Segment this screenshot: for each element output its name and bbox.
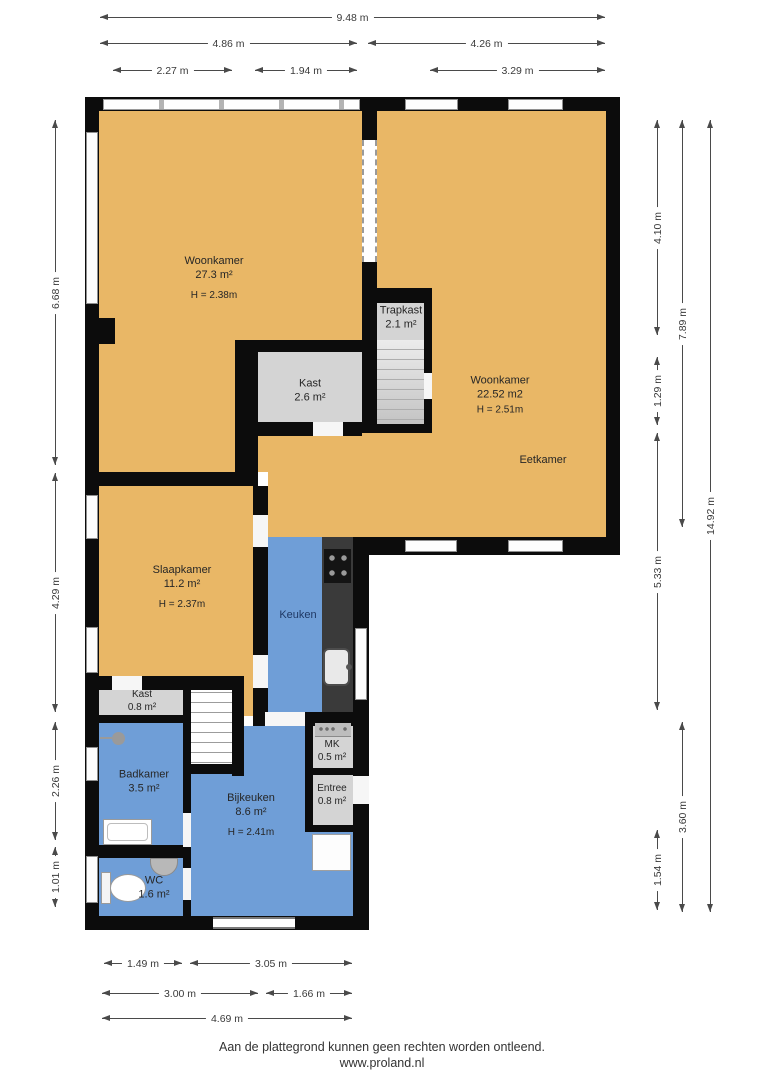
dimension-label: 2.27 m <box>151 65 193 77</box>
dimension-label: 4.10 m <box>652 206 664 248</box>
dim-bottom-total: 4.69 m <box>102 1018 352 1019</box>
dim-top-left-half: 4.86 m <box>100 43 357 44</box>
dim-bottom-seg2: 3.05 m <box>190 963 352 964</box>
dim-top-seg3: 3.29 m <box>430 70 605 71</box>
room-area: 2.1 m² <box>380 318 422 332</box>
dimension-label: 4.86 m <box>207 38 249 50</box>
room-name: Bijkeuken <box>227 791 275 805</box>
dimension-label: 1.94 m <box>285 65 327 77</box>
dim-left-slaapkamer: 4.29 m <box>55 473 56 712</box>
room-area: 11.2 m² <box>153 578 212 592</box>
room-area: 8.6 m² <box>227 806 275 820</box>
staircase <box>187 683 232 764</box>
room-height: H = 2.37m <box>153 598 212 611</box>
wall-segment <box>187 764 244 774</box>
dimension-label: 5.33 m <box>652 550 664 592</box>
wall-segment <box>235 340 362 352</box>
door-opening <box>424 373 432 399</box>
room-label-wc: WC 1.6 m² <box>138 874 169 903</box>
room-label-bijkeuken: Bijkeuken 8.6 m² H = 2.41m <box>227 791 275 839</box>
wall-segment <box>85 676 112 690</box>
trapkast-stairs <box>377 340 424 427</box>
dimension-label: 3.00 m <box>159 988 201 1000</box>
dim-right-lower: 3.60 m <box>682 722 683 912</box>
wall-segment <box>244 422 313 436</box>
stove-fixture <box>324 549 351 583</box>
wall-segment <box>142 676 244 690</box>
shower-head-fixture <box>112 732 125 745</box>
disclaimer-text: Aan de plattegrond kunnen geen rechten w… <box>0 1040 764 1054</box>
room-label-keuken: Keuken <box>279 608 316 622</box>
room-label-kast-beneden: Kast 0.8 m² <box>128 688 156 714</box>
door-opening <box>253 515 268 547</box>
dimension-label: 1.66 m <box>288 988 330 1000</box>
wall-segment <box>362 303 377 433</box>
room-name: Eetkamer <box>519 453 566 467</box>
dimension-label: 3.60 m <box>677 796 689 838</box>
room-height: H = 2.51m <box>470 403 529 416</box>
wall-segment <box>424 303 432 433</box>
dim-top-seg2: 1.94 m <box>255 70 357 71</box>
chimney-breast <box>99 318 115 344</box>
dimension-label: 1.49 m <box>122 958 164 970</box>
room-area: 22.52 m2 <box>470 388 529 402</box>
room-area: 1.6 m² <box>138 888 169 902</box>
washing-machine-fixture <box>312 834 351 871</box>
dim-left-badkamer: 2.26 m <box>55 722 56 840</box>
wall-segment <box>99 715 183 723</box>
door-opening <box>253 655 268 688</box>
room-label-kast-boven: Kast 2.6 m² <box>294 377 325 406</box>
room-label-entree: Entree 0.8 m² <box>317 782 346 808</box>
room-label-eetkamer: Eetkamer <box>519 453 566 467</box>
door-opening <box>183 813 191 847</box>
wall-segment <box>343 422 362 436</box>
dim-top-seg1: 2.27 m <box>113 70 232 71</box>
wall-segment <box>313 768 353 775</box>
dim-right-upper: 7.89 m <box>682 120 683 527</box>
meter-cabinet-fixture <box>315 723 351 737</box>
door-opening <box>265 712 305 726</box>
website-text: www.proland.nl <box>0 1056 764 1070</box>
room-label-slaapkamer: Slaapkamer 11.2 m² H = 2.37m <box>153 563 212 611</box>
dim-bottom-seg3: 3.00 m <box>102 993 258 994</box>
dim-top-right-half: 4.26 m <box>368 43 605 44</box>
wall-segment <box>253 712 265 726</box>
floorplan: 9.48 m 4.86 m 4.26 m 2.27 m 1.94 m 3.29 … <box>0 0 764 1080</box>
room-name: Keuken <box>279 608 316 622</box>
dimension-label: 3.05 m <box>250 958 292 970</box>
room-divider-opening <box>362 140 377 262</box>
wall-segment <box>353 537 620 555</box>
room-area: 0.8 m² <box>128 701 156 714</box>
door-opening <box>313 422 343 436</box>
dim-left-woonkamer: 6.68 m <box>55 120 56 465</box>
room-area: 2.6 m² <box>294 391 325 405</box>
room-area: 3.5 m² <box>119 782 169 796</box>
dim-bottom-seg1: 1.49 m <box>104 963 182 964</box>
wall-segment <box>85 845 191 858</box>
window <box>103 99 360 110</box>
room-label-trapkast: Trapkast 2.1 m² <box>380 304 422 333</box>
dimension-label: 14.92 m <box>705 492 717 540</box>
window <box>508 99 563 110</box>
dim-bottom-seg4: 1.66 m <box>266 993 352 994</box>
wall-segment <box>85 472 257 486</box>
window <box>355 628 367 700</box>
wall-segment <box>305 712 313 832</box>
front-door <box>213 917 295 929</box>
wall-segment <box>253 486 268 515</box>
dim-left-wc: 1.01 m <box>55 847 56 907</box>
window <box>405 99 458 110</box>
room-label-badkamer: Badkamer 3.5 m² <box>119 768 169 797</box>
room-label-woonkamer-left: Woonkamer 27.3 m² H = 2.38m <box>184 254 243 302</box>
bathtub-fixture <box>103 819 152 845</box>
dim-right-seg1: 4.10 m <box>657 120 658 335</box>
dimension-label: 3.29 m <box>496 65 538 77</box>
room-label-mk: MK 0.5 m² <box>318 738 346 764</box>
kitchen-sink-fixture <box>323 648 350 686</box>
window <box>508 540 563 552</box>
wall-segment <box>183 690 191 813</box>
wall-segment <box>305 825 353 832</box>
dimension-label: 1.01 m <box>50 856 62 898</box>
dimension-label: 4.29 m <box>50 571 62 613</box>
room-height: H = 2.38m <box>184 289 243 302</box>
door-opening <box>183 868 191 900</box>
room-height: H = 2.41m <box>227 826 275 839</box>
room-name: Badkamer <box>119 768 169 782</box>
dimension-label: 4.26 m <box>465 38 507 50</box>
wall-segment <box>362 288 432 303</box>
wall-segment <box>362 424 432 433</box>
room-keuken-floor <box>268 537 322 712</box>
dimension-label: 9.48 m <box>331 12 373 24</box>
window <box>86 856 98 903</box>
entree-door-opening <box>353 776 369 804</box>
room-name: Woonkamer <box>184 254 243 268</box>
dim-right-seg4: 1.54 m <box>657 830 658 910</box>
room-name: Woonkamer <box>470 374 529 388</box>
wall-segment <box>606 97 620 555</box>
dimension-label: 1.54 m <box>652 849 664 891</box>
room-label-woonkamer-right: Woonkamer 22.52 m2 H = 2.51m <box>470 374 529 417</box>
dim-right-seg3: 5.33 m <box>657 433 658 710</box>
room-name: WC <box>138 874 169 888</box>
dimension-label: 1.29 m <box>652 370 664 412</box>
dim-top-total: 9.48 m <box>100 17 605 18</box>
wall-segment <box>253 547 268 655</box>
window <box>86 627 98 673</box>
window <box>86 495 98 539</box>
dim-right-total: 14.92 m <box>710 120 711 912</box>
wall-segment <box>235 352 258 486</box>
dim-right-seg2: 1.29 m <box>657 357 658 425</box>
dimension-label: 2.26 m <box>50 760 62 802</box>
dimension-label: 7.89 m <box>677 302 689 344</box>
room-area: 0.5 m² <box>318 751 346 764</box>
room-name: Entree <box>317 782 346 795</box>
wall-segment <box>183 900 191 916</box>
room-name: Slaapkamer <box>153 563 212 577</box>
dimension-label: 4.69 m <box>206 1013 248 1025</box>
room-area: 0.8 m² <box>317 795 346 808</box>
room-eetkamer-floor <box>268 433 377 537</box>
room-name: Kast <box>128 688 156 701</box>
window <box>86 747 98 781</box>
room-name: MK <box>318 738 346 751</box>
window <box>86 132 98 304</box>
room-area: 27.3 m² <box>184 269 243 283</box>
wall-segment <box>353 555 369 930</box>
dimension-label: 6.68 m <box>50 271 62 313</box>
window <box>405 540 457 552</box>
room-name: Kast <box>294 377 325 391</box>
room-name: Trapkast <box>380 304 422 318</box>
